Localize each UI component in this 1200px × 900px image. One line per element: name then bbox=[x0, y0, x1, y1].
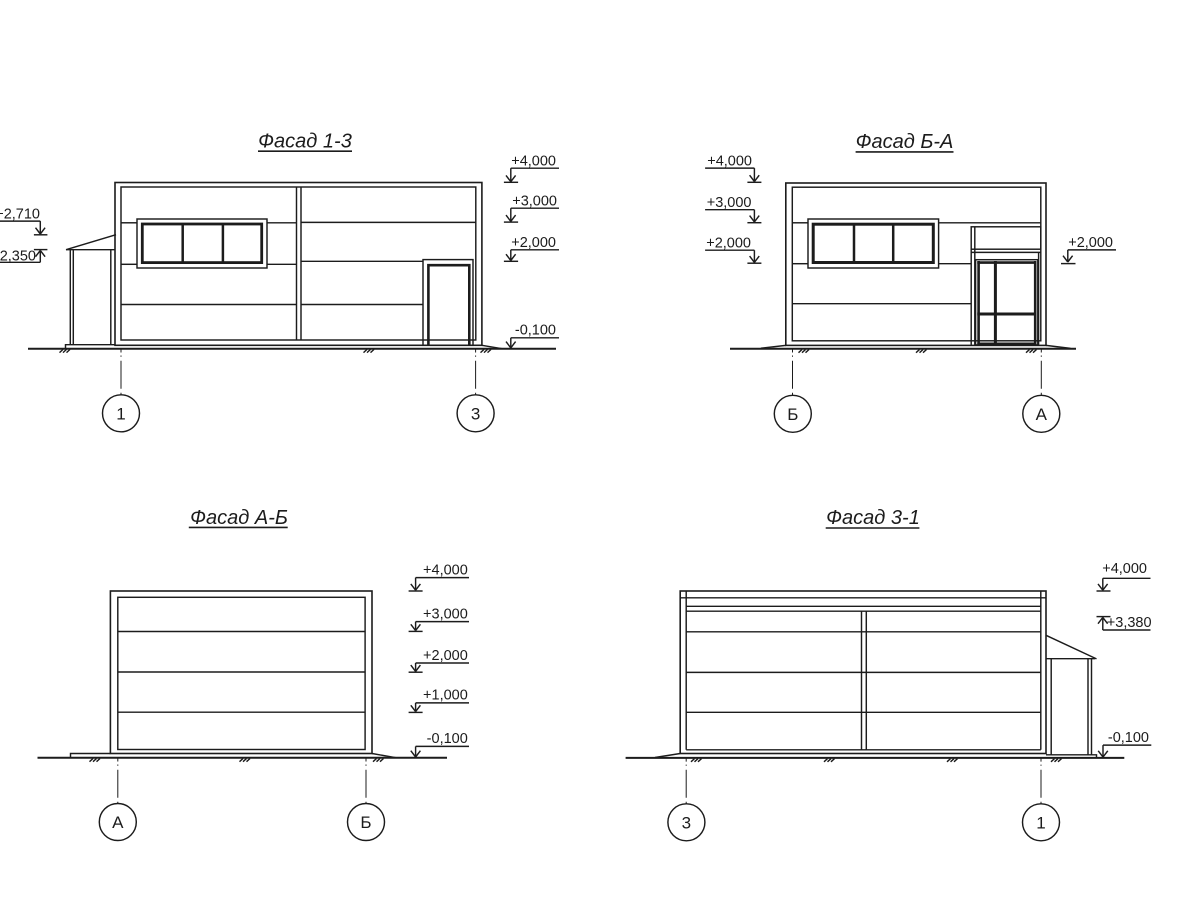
svg-text:+2,000: +2,000 bbox=[511, 235, 556, 251]
svg-text:3: 3 bbox=[471, 404, 480, 423]
svg-text:+3,000: +3,000 bbox=[512, 194, 557, 210]
svg-text:+4,000: +4,000 bbox=[423, 562, 468, 578]
svg-text:Фасад 3-1: Фасад 3-1 bbox=[826, 507, 920, 529]
svg-text:+3,380: +3,380 bbox=[1107, 615, 1152, 631]
svg-text:+3,000: +3,000 bbox=[423, 607, 468, 623]
svg-text:А: А bbox=[112, 813, 124, 832]
svg-text:+2,000: +2,000 bbox=[423, 648, 468, 664]
svg-text:+1,000: +1,000 bbox=[423, 688, 468, 704]
svg-text:+3,000: +3,000 bbox=[707, 195, 752, 211]
svg-text:Б: Б bbox=[360, 813, 371, 832]
svg-text:+4,000: +4,000 bbox=[511, 153, 556, 169]
svg-text:1: 1 bbox=[116, 404, 125, 423]
svg-text:1: 1 bbox=[1036, 813, 1045, 832]
svg-text:Фасад А-Б: Фасад А-Б bbox=[190, 507, 288, 529]
svg-text:Фасад 1-3: Фасад 1-3 bbox=[258, 131, 352, 153]
svg-text:+2,000: +2,000 bbox=[1068, 235, 1113, 251]
svg-text:3: 3 bbox=[682, 813, 691, 832]
svg-text:+2,000: +2,000 bbox=[706, 235, 751, 251]
svg-text:+4,000: +4,000 bbox=[1102, 561, 1147, 577]
svg-text:Б: Б bbox=[787, 405, 798, 424]
svg-text:+4,000: +4,000 bbox=[707, 153, 752, 169]
svg-text:-0,100: -0,100 bbox=[515, 323, 556, 339]
svg-text:+2,710: +2,710 bbox=[0, 206, 40, 222]
svg-text:Фасад Б-А: Фасад Б-А bbox=[856, 131, 954, 153]
svg-text:А: А bbox=[1036, 405, 1048, 424]
svg-text:-0,100: -0,100 bbox=[427, 731, 468, 747]
svg-text:-0,100: -0,100 bbox=[1108, 730, 1149, 746]
